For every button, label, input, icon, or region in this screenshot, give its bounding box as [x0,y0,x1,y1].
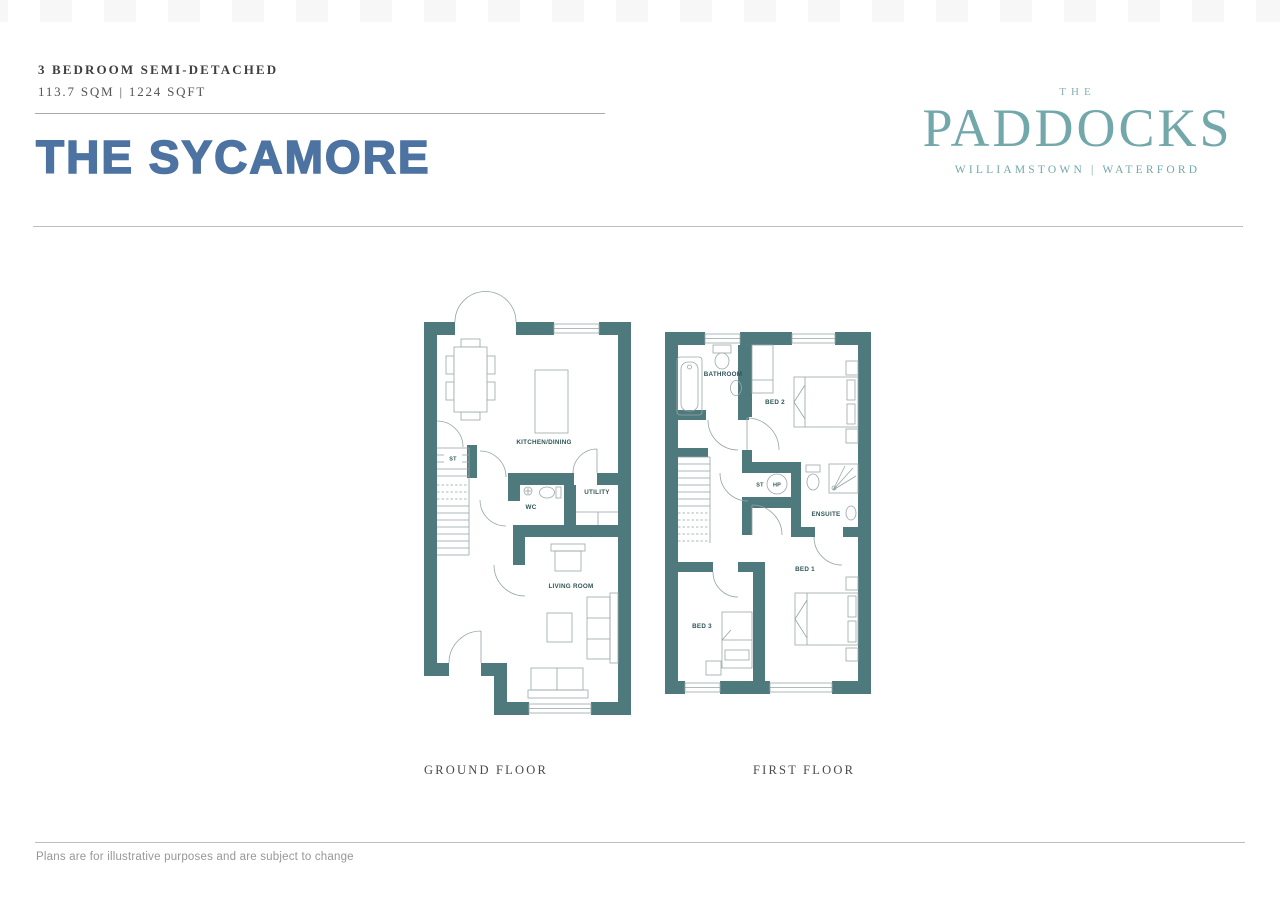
french-doors [455,292,516,323]
brochure-page: 3 BEDROOM SEMI-DETACHED 113.7 SQM | 1224… [0,0,1280,905]
header-divider [35,113,605,114]
house-name-title: THE SYCAMORE [36,130,431,184]
ground-floor-plan: KITCHEN/DINING ST WC UTILITY LIVING ROOM [424,288,634,725]
label-hp: HP [773,483,781,489]
ground-floor-caption: GROUND FLOOR [424,763,548,778]
label-utility: UTILITY [584,489,610,496]
label-bed1: BED 1 [795,566,815,573]
first-stairs [678,457,710,543]
footer-divider [35,842,1245,843]
dining-table [446,339,495,420]
property-type: 3 BEDROOM SEMI-DETACHED [38,62,278,78]
logo-prefix: THE [905,86,1250,98]
label-bed2: BED 2 [765,399,785,406]
label-kitchen-dining: KITCHEN/DINING [516,439,571,446]
label-first-st: ST [756,483,764,489]
label-wc: WC [526,504,537,511]
section-divider [33,226,1243,227]
label-bathroom: BATHROOM [704,371,743,378]
bed1-furniture [795,577,858,661]
label-ensuite: ENSUITE [811,511,840,518]
label-living-room: LIVING ROOM [548,583,593,590]
first-floor-plan: BATHROOM BED 2 ST HP ENSUITE BED 1 BED 3 [665,332,871,694]
living-room-furniture [528,544,618,698]
logo-name: PADDOCKS [905,100,1250,157]
bed2-furniture [752,345,858,443]
label-ground-st: ST [449,457,457,463]
bathroom-fixtures [677,345,742,415]
ground-interior-walls [467,445,618,565]
ground-stairs [437,448,469,555]
bed3-furniture [706,612,752,675]
kitchen-island [535,370,568,433]
wc-fixtures [524,487,561,498]
label-bed3: BED 3 [692,623,712,630]
disclaimer-text: Plans are for illustrative purposes and … [36,851,354,863]
logo-location: WILLIAMSTOWN | WATERFORD [905,164,1250,176]
utility-counter [576,512,618,525]
property-area: 113.7 SQM | 1224 SQFT [38,84,206,100]
development-logo: THE PADDOCKS WILLIAMSTOWN | WATERFORD [905,86,1250,176]
first-floor-caption: FIRST FLOOR [753,763,855,778]
top-edge-pattern [0,0,1280,22]
